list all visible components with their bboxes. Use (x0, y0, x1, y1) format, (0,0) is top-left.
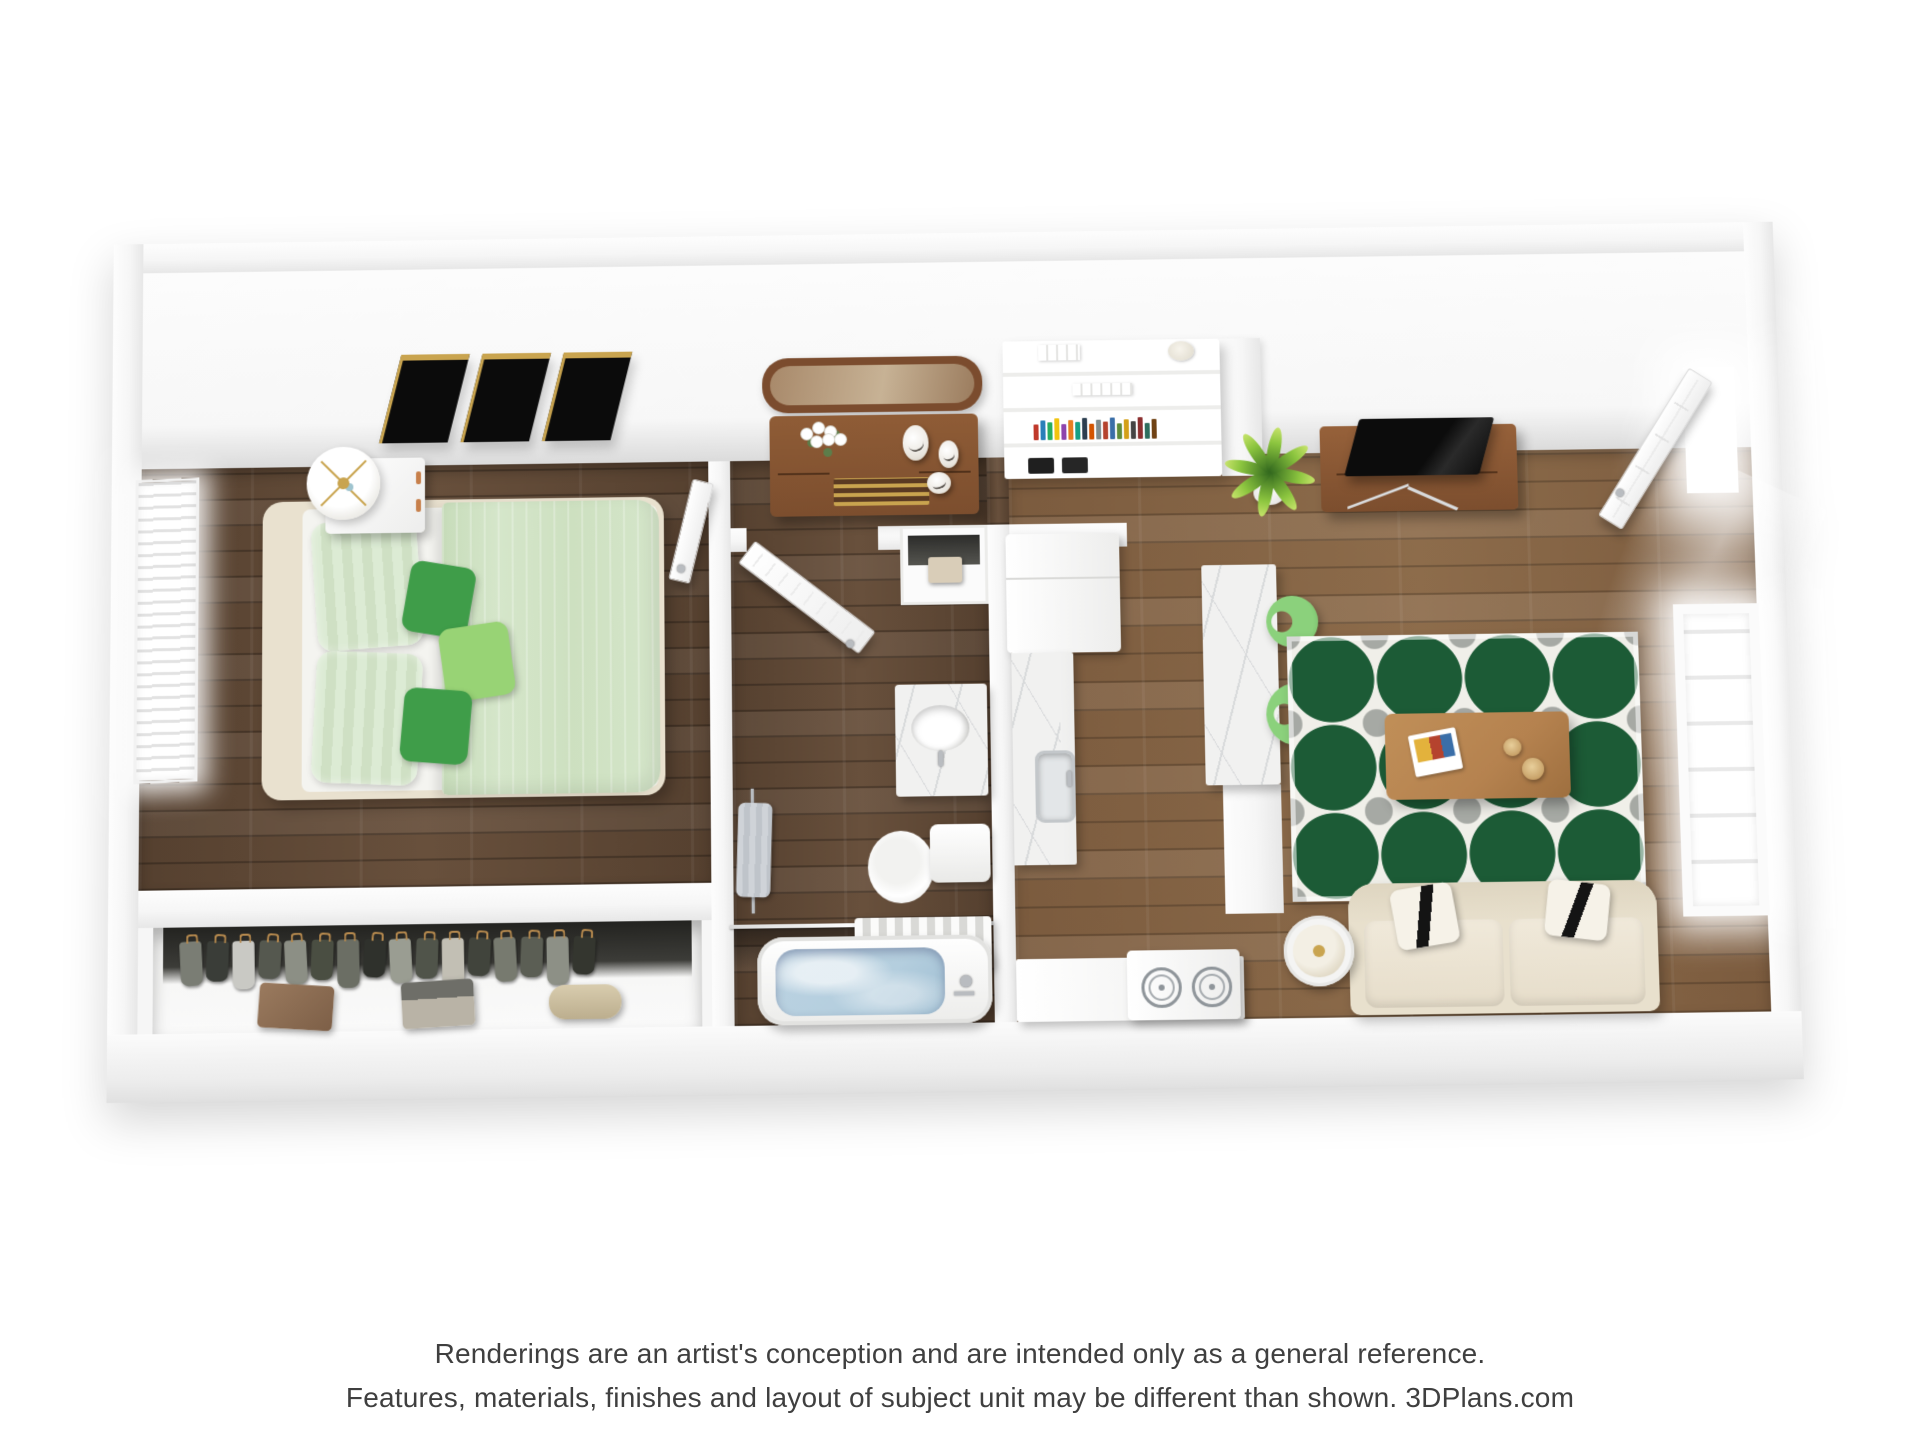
mirror-glass (770, 364, 975, 406)
book-spine (1068, 420, 1073, 440)
storage-bins (1028, 458, 1054, 474)
book-spine (1075, 422, 1080, 440)
closet-bag (401, 978, 476, 1029)
stove-burner (1191, 966, 1232, 1007)
bookshelf-shelf (1004, 409, 1222, 447)
bookshelf-bottom (1004, 445, 1222, 480)
book-spines (1033, 417, 1158, 440)
door-knob (676, 564, 686, 574)
stove (1127, 949, 1241, 1020)
dresser-mirror (762, 356, 983, 414)
book-spine (1117, 423, 1122, 439)
white-book-stack (1038, 344, 1080, 360)
book-spine (1103, 422, 1108, 440)
drawer-seam (778, 473, 830, 476)
sink-faucet (938, 751, 943, 767)
hanging-garment (572, 936, 596, 975)
bookshelf-shelf (1003, 374, 1221, 412)
hanging-garment (206, 941, 230, 982)
dresser-drawers (834, 477, 930, 506)
niche-box (928, 557, 962, 583)
hanging-garment (310, 939, 334, 980)
nightstand-handle (416, 471, 421, 484)
hanging-garment (467, 937, 491, 976)
decor-bowl (1168, 341, 1194, 361)
hanging-garment (415, 938, 439, 979)
book-spine (1047, 422, 1052, 440)
floor-plan-scene (106, 222, 1803, 1103)
book-spine (1145, 423, 1150, 439)
hanging-garment (520, 937, 543, 978)
wall-art-panel (461, 353, 552, 443)
book-spine (1054, 418, 1059, 440)
book-spine (1061, 424, 1066, 440)
book-spine (1152, 419, 1157, 439)
bookshelf (1002, 339, 1222, 479)
book-spine (1131, 421, 1136, 439)
dresser-flowers (801, 422, 853, 466)
book-spine (1124, 419, 1129, 439)
wall-bath-north-b (878, 526, 900, 550)
book-spine (1089, 424, 1094, 440)
tub-spout (954, 991, 974, 995)
closet-box (257, 983, 335, 1032)
television (1344, 417, 1494, 476)
hanging-garment (493, 936, 518, 982)
toilet-tank (930, 824, 991, 883)
hanging-garment (362, 939, 386, 978)
bathtub-water (775, 947, 945, 1016)
accent-pillow-dark (399, 687, 473, 766)
book-spine (1110, 418, 1115, 440)
book-spine (1040, 420, 1045, 440)
wall-bath-north-a (731, 528, 747, 552)
book-spine (1096, 420, 1101, 440)
floor-plan (106, 222, 1803, 1103)
sofa-pillow (1389, 881, 1461, 951)
wall-kitchen-east (1223, 784, 1284, 914)
hanging-garment (546, 936, 569, 985)
magazine (1408, 727, 1464, 777)
bedroom-window-blinds (133, 477, 199, 784)
living-window (1673, 603, 1770, 916)
hanging-garment (258, 940, 282, 979)
sofa-pillow (1544, 879, 1611, 942)
potted-plant (1224, 416, 1316, 516)
table-vase (1503, 738, 1522, 756)
book-spine (1082, 418, 1087, 440)
lamp-finial (337, 477, 349, 489)
linen-niche (900, 525, 989, 605)
closet-garments (178, 927, 682, 989)
stove-burner (1141, 967, 1182, 1008)
disclaimer-line-2: Features, materials, finishes and layout… (0, 1382, 1920, 1414)
hanging-garment (179, 941, 203, 987)
hanging-garment (232, 940, 255, 989)
wall-art-group (390, 352, 634, 449)
hanging-garment (337, 939, 360, 988)
towel (736, 802, 773, 897)
disclaimer-line-1: Renderings are an artist's conception an… (0, 1338, 1920, 1370)
hanging-garment (389, 938, 413, 984)
breakfast-bar (1201, 564, 1281, 785)
dresser-vase (902, 425, 928, 461)
book-spine (1033, 424, 1038, 440)
closet-duffel (549, 984, 622, 1019)
refrigerator (1005, 533, 1121, 654)
dresser-vase (938, 440, 958, 468)
hanging-garment (284, 939, 308, 985)
nightstand-handle (416, 499, 421, 512)
magazine-stack (1072, 383, 1132, 396)
fridge-door-seam (1006, 576, 1120, 580)
wall-art-panel (542, 352, 632, 442)
wall-art-panel (379, 354, 470, 444)
bookshelf-top (1002, 339, 1220, 377)
kitchen-faucet (1067, 771, 1072, 787)
book-spine (1138, 417, 1143, 439)
